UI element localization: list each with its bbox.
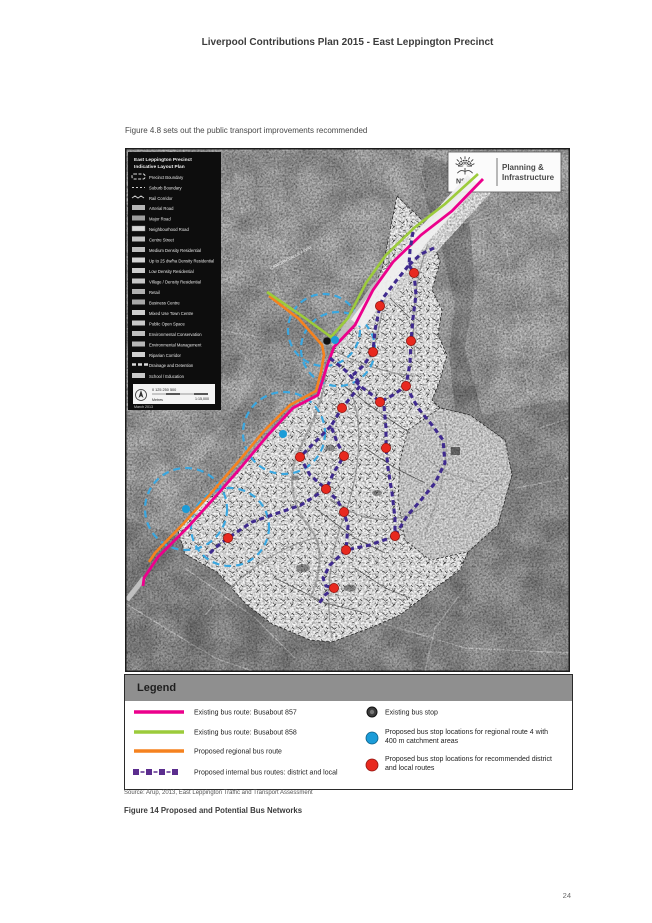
svg-text:400 m catchment areas: 400 m catchment areas xyxy=(385,738,459,745)
svg-text:Indicative Layout Plan: Indicative Layout Plan xyxy=(134,164,185,170)
svg-text:Up to 25 dw/ha Density Residen: Up to 25 dw/ha Density Residential xyxy=(149,259,214,264)
svg-text:Precinct Boundary: Precinct Boundary xyxy=(149,175,184,180)
svg-text:Infrastructure: Infrastructure xyxy=(502,173,555,182)
svg-text:Medium Density Residential: Medium Density Residential xyxy=(149,248,201,253)
svg-text:Suburb Boundary: Suburb Boundary xyxy=(149,186,182,191)
svg-text:Planning &: Planning & xyxy=(502,163,544,172)
svg-text:School / Education: School / Education xyxy=(149,374,185,379)
svg-text:Existing bus route: Busabout 8: Existing bus route: Busabout 857 xyxy=(194,710,297,717)
svg-text:Environmental Management: Environmental Management xyxy=(149,343,202,348)
svg-text:Low Density Residential: Low Density Residential xyxy=(149,269,194,274)
svg-text:and local routes: and local routes xyxy=(385,765,435,772)
svg-text:Public Open Space: Public Open Space xyxy=(149,322,186,327)
svg-text:Existing bus route: Busabout 8: Existing bus route: Busabout 858 xyxy=(194,730,297,737)
svg-text:Centre Street: Centre Street xyxy=(149,238,175,243)
svg-text:Proposed bus stop locations fo: Proposed bus stop locations for recommen… xyxy=(385,756,552,763)
svg-text:Major Road: Major Road xyxy=(149,217,171,222)
svg-text:Existing bus stop: Existing bus stop xyxy=(385,710,438,717)
svg-text:Village / Density Residential: Village / Density Residential xyxy=(149,280,201,285)
svg-text:1:15,000: 1:15,000 xyxy=(195,397,209,401)
svg-text:Business Centre: Business Centre xyxy=(149,301,180,306)
svg-text:Rail Corridor: Rail Corridor xyxy=(149,196,173,201)
svg-text:0 125 250 500: 0 125 250 500 xyxy=(152,388,176,392)
svg-text:Proposed internal bus routes:: Proposed internal bus routes: district a… xyxy=(194,770,338,777)
svg-text:Drainage and Detention: Drainage and Detention xyxy=(149,363,194,368)
svg-text:Riparian Corridor: Riparian Corridor xyxy=(149,353,181,358)
svg-text:Metres: Metres xyxy=(152,398,163,402)
svg-text:East Leppington Precinct: East Leppington Precinct xyxy=(134,157,192,163)
svg-text:March 2013: March 2013 xyxy=(134,405,153,409)
svg-text:Mixed Use Town Centre: Mixed Use Town Centre xyxy=(149,311,194,316)
svg-text:Retail: Retail xyxy=(149,290,160,295)
svg-text:Proposed regional bus route: Proposed regional bus route xyxy=(194,749,282,756)
svg-text:Neighbourhood Road: Neighbourhood Road xyxy=(149,227,189,232)
svg-text:Arterial Road: Arterial Road xyxy=(149,206,174,211)
svg-text:Environmental Conservation: Environmental Conservation xyxy=(149,332,202,337)
svg-text:Proposed bus stop locations fo: Proposed bus stop locations for regional… xyxy=(385,729,548,736)
